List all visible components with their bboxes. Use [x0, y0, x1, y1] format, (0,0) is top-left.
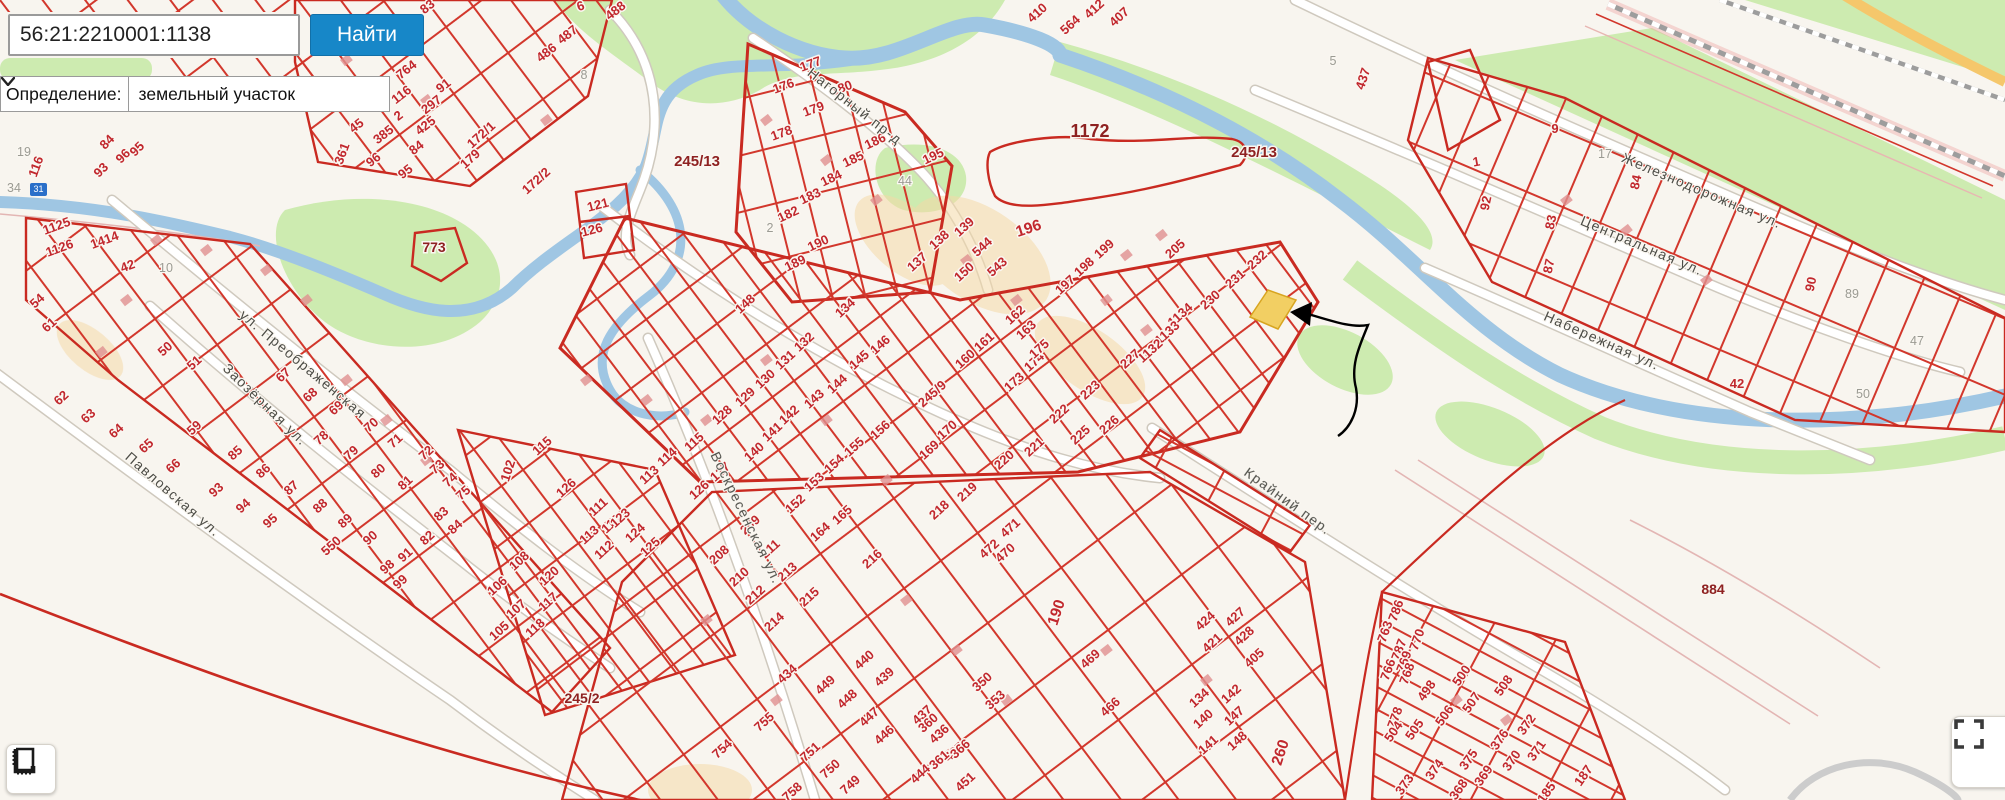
parcel-number: 92: [1477, 194, 1495, 211]
quarter-number: 245/2: [564, 690, 599, 706]
definition-selected-option: земельный участок: [139, 84, 296, 105]
quarter-number: 773: [422, 239, 446, 255]
quarter-number: 884: [1701, 581, 1725, 597]
parcel-number: 90: [1802, 275, 1820, 292]
fullscreen-button[interactable]: [1951, 716, 2005, 788]
reference-number: 89: [1845, 287, 1859, 301]
parcel-number: 42: [1730, 376, 1744, 391]
reference-number: 17: [1598, 147, 1612, 161]
find-button[interactable]: Найти: [310, 14, 424, 56]
reference-number: 8: [581, 68, 588, 82]
reference-number: 2: [767, 221, 774, 235]
parcel-number: 87: [1540, 257, 1558, 274]
parcel-number: 9: [1551, 121, 1558, 136]
reference-number: 44: [898, 174, 912, 188]
quarter-number: 1172: [1070, 121, 1109, 141]
ruler-icon: [7, 745, 37, 775]
parcel-number: 83: [1542, 213, 1560, 230]
definition-row: Определение: земельный участок: [0, 76, 390, 112]
reference-number: 50: [1856, 387, 1870, 401]
cadastral-map-app: 8348864874867649111629724254538536196849…: [0, 0, 2005, 800]
search-bar: Найти: [8, 14, 424, 56]
chevron-down-icon: [1, 77, 15, 86]
measure-button[interactable]: [6, 744, 56, 794]
quarter-number: 245/13: [674, 153, 720, 170]
road-number-badge: 31: [30, 183, 47, 196]
definition-label: Определение:: [1, 77, 128, 111]
reference-number: 10: [159, 261, 173, 275]
reference-number: 5: [1330, 54, 1337, 68]
reference-number: 19: [17, 145, 31, 159]
map-canvas[interactable]: 8348864874867649111629724254538536196849…: [0, 0, 2005, 800]
quarter-number: 245/13: [1231, 144, 1277, 161]
definition-select[interactable]: земельный участок: [128, 77, 389, 111]
reference-number: 47: [1910, 334, 1924, 348]
reference-number: 34: [7, 181, 21, 195]
fullscreen-icon: [1952, 717, 1986, 751]
cadastral-search-input[interactable]: [8, 14, 300, 56]
